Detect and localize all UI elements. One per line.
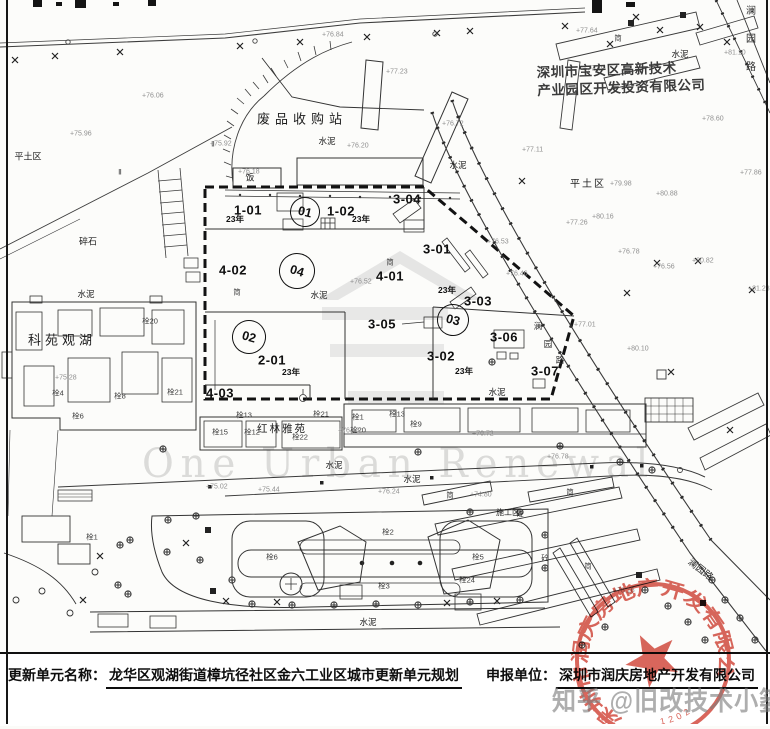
bottomcenter-buildings [90, 520, 560, 632]
scan-marks [33, 0, 635, 13]
map-canvas [0, 0, 770, 655]
unit-boundary [205, 187, 574, 402]
ladder-feature [158, 168, 200, 282]
main-road [432, 100, 770, 651]
scan-edge-right [766, 0, 768, 724]
school-compound [151, 509, 548, 608]
bottomright-buildings [422, 477, 706, 625]
zhihu-watermark: 知乎 @旧改技术小篓 [552, 680, 770, 718]
applicant-label: 申报单位： [486, 665, 556, 689]
scanned-plan-sheet: 1-011-023-044-024-013-013-033-053-062-01… [0, 0, 770, 724]
topleft-road [0, 41, 352, 259]
unit-name-value: 龙华区观湖街道樟坑径社区金六工业区城市更新单元规划 [106, 665, 462, 689]
fence-line [0, 8, 585, 47]
brand-watermark: One Urban Renewal [142, 441, 666, 487]
circle-markers [66, 32, 683, 473]
unit-name-label: 更新单元名称： [8, 665, 106, 685]
scrap-yard [225, 58, 468, 199]
rightmid-buildings [657, 370, 770, 470]
logo-watermark [318, 251, 482, 404]
scan-edge-left [6, 0, 8, 724]
